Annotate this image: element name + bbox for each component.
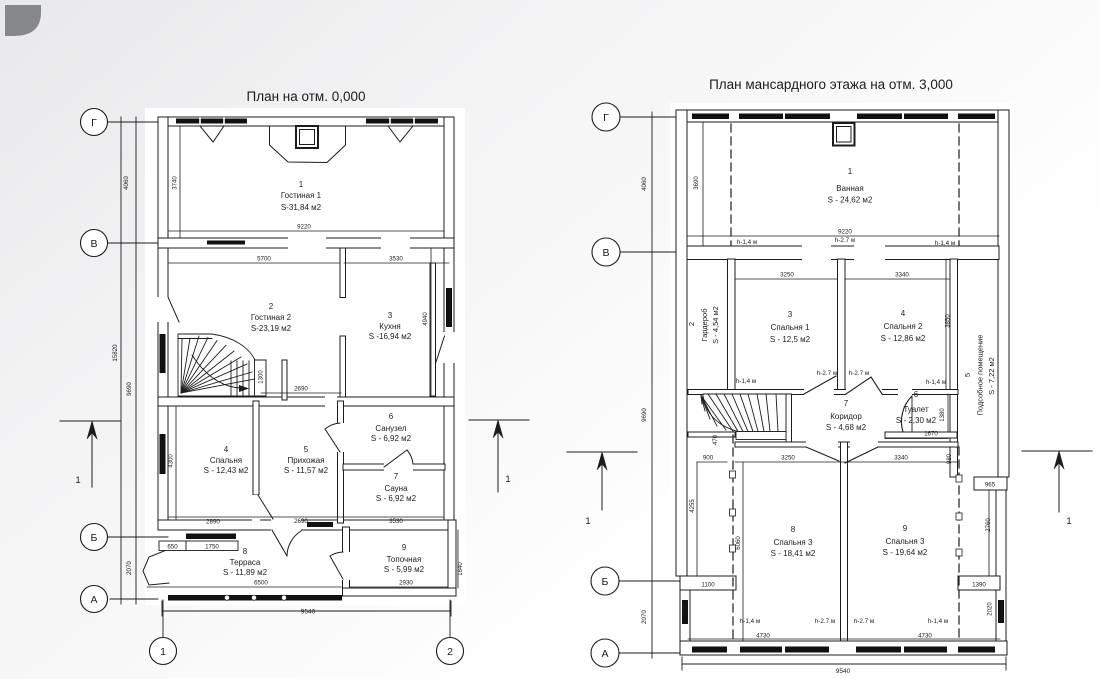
svg-text:2070: 2070	[126, 561, 133, 575]
svg-text:1390: 1390	[972, 582, 986, 589]
svg-text:1: 1	[1066, 516, 1071, 527]
svg-text:2760: 2760	[986, 518, 992, 532]
svg-text:5: 5	[963, 373, 972, 377]
svg-text:План на отм. 0,000: План на отм. 0,000	[247, 89, 366, 104]
svg-text:8: 8	[243, 547, 248, 556]
svg-text:6060: 6060	[736, 536, 742, 550]
svg-text:А: А	[90, 594, 97, 606]
svg-text:9540: 9540	[836, 668, 851, 675]
svg-text:7: 7	[394, 472, 399, 481]
svg-text:1750: 1750	[205, 544, 219, 551]
svg-text:2: 2	[447, 646, 453, 658]
svg-text:5700: 5700	[257, 256, 271, 263]
svg-text:965: 965	[985, 482, 996, 489]
svg-text:S-23,19 м2: S-23,19 м2	[251, 324, 292, 333]
svg-text:S - 12,86 м2: S - 12,86 м2	[881, 334, 926, 343]
svg-text:4: 4	[901, 309, 906, 318]
svg-text:1: 1	[848, 167, 853, 176]
svg-text:S - 19,64 м2: S - 19,64 м2	[883, 548, 928, 557]
svg-text:S - 24,62 м2: S - 24,62 м2	[828, 196, 873, 205]
svg-text:S - 6,92 м2: S - 6,92 м2	[376, 494, 417, 503]
svg-text:S - 2,30 м2: S - 2,30 м2	[896, 416, 937, 425]
svg-text:1: 1	[160, 646, 166, 658]
svg-text:Терраса: Терраса	[230, 558, 261, 567]
svg-text:S - 18,41 м2: S - 18,41 м2	[771, 549, 816, 558]
svg-text:Топочная: Топочная	[387, 555, 422, 564]
svg-text:6500: 6500	[254, 580, 268, 587]
svg-text:1: 1	[75, 475, 80, 486]
svg-text:2: 2	[687, 322, 696, 326]
svg-text:План мансардного этажа на отм.: План мансардного этажа на отм. 3,000	[709, 77, 953, 92]
svg-text:470: 470	[713, 434, 719, 445]
svg-text:Гостиная 1: Гостиная 1	[281, 191, 322, 200]
svg-text:S - 6,92 м2: S - 6,92 м2	[371, 434, 412, 443]
svg-text:4730: 4730	[756, 633, 770, 640]
svg-text:7: 7	[844, 399, 849, 408]
svg-text:2: 2	[269, 302, 274, 311]
svg-text:Ванная: Ванная	[836, 184, 863, 193]
svg-text:3530: 3530	[389, 518, 403, 525]
svg-text:3340: 3340	[895, 272, 909, 279]
svg-text:S - 11,57 м2: S - 11,57 м2	[284, 466, 329, 475]
svg-text:Гардероб: Гардероб	[700, 309, 709, 342]
svg-text:h-2.7 м: h-2.7 м	[817, 370, 837, 377]
svg-text:h-2.7 м: h-2.7 м	[835, 237, 855, 244]
svg-text:4: 4	[224, 445, 229, 454]
svg-text:h-1,4 м: h-1,4 м	[740, 618, 760, 625]
svg-text:2070: 2070	[641, 610, 648, 624]
svg-text:15820: 15820	[112, 344, 119, 362]
svg-text:6: 6	[389, 412, 394, 421]
svg-text:S -16,94 м2: S -16,94 м2	[369, 332, 412, 341]
svg-text:3740: 3740	[173, 176, 179, 190]
svg-text:4940: 4940	[423, 312, 429, 326]
svg-text:9690: 9690	[126, 382, 133, 396]
svg-text:6: 6	[914, 390, 919, 399]
svg-text:h-1,4 м: h-1,4 м	[928, 618, 948, 625]
svg-text:4730: 4730	[918, 633, 932, 640]
svg-text:2690: 2690	[294, 386, 308, 393]
svg-text:S - 7,22 м2: S - 7,22 м2	[987, 357, 996, 395]
svg-text:4060: 4060	[641, 177, 648, 191]
svg-text:9: 9	[903, 524, 908, 533]
svg-text:1: 1	[505, 474, 510, 485]
svg-text:2890: 2890	[206, 519, 220, 526]
svg-text:h-1,4 м: h-1,4 м	[935, 240, 955, 247]
svg-text:S - 4,54 м2: S - 4,54 м2	[711, 306, 720, 344]
svg-text:9: 9	[402, 543, 407, 552]
svg-text:h-1,4 м: h-1,4 м	[926, 379, 946, 386]
svg-text:3530: 3530	[389, 256, 403, 263]
svg-text:Г: Г	[91, 117, 97, 129]
svg-text:5: 5	[304, 445, 309, 454]
svg-text:2690: 2690	[294, 518, 308, 525]
svg-text:980: 980	[947, 453, 953, 464]
svg-text:Прихожая: Прихожая	[287, 456, 324, 465]
svg-text:S - 4,68 м2: S - 4,68 м2	[826, 423, 867, 432]
svg-text:3850: 3850	[946, 314, 952, 328]
svg-text:S - 5,99 м2: S - 5,99 м2	[384, 565, 425, 574]
svg-text:3: 3	[788, 310, 793, 319]
svg-text:4300: 4300	[169, 454, 175, 468]
svg-text:Спальня 2: Спальня 2	[884, 322, 923, 331]
svg-text:3250: 3250	[780, 272, 794, 279]
svg-text:1670: 1670	[924, 431, 938, 438]
svg-text:Кухня: Кухня	[379, 322, 400, 331]
svg-text:9220: 9220	[838, 229, 852, 236]
svg-text:h-1,4 м: h-1,4 м	[736, 378, 756, 385]
svg-text:3340: 3340	[894, 455, 908, 462]
svg-text:1100: 1100	[701, 582, 715, 589]
svg-text:Сауна: Сауна	[384, 484, 408, 493]
svg-text:650: 650	[167, 544, 178, 551]
svg-text:9220: 9220	[297, 224, 311, 231]
svg-text:Спальня 3: Спальня 3	[774, 538, 813, 547]
svg-text:Спальня 1: Спальня 1	[771, 323, 810, 332]
svg-text:9540: 9540	[301, 609, 316, 616]
svg-text:9690: 9690	[641, 408, 648, 422]
svg-text:Спальня 3: Спальня 3	[886, 537, 925, 546]
svg-text:2930: 2930	[399, 580, 413, 587]
svg-text:900: 900	[703, 455, 714, 462]
svg-text:1: 1	[299, 180, 304, 189]
svg-text:1300: 1300	[259, 370, 265, 384]
svg-text:S - 12,43 м2: S - 12,43 м2	[204, 466, 249, 475]
svg-text:Гостиная 2: Гостиная 2	[251, 313, 292, 322]
svg-text:1840: 1840	[458, 562, 464, 576]
svg-text:Туалет: Туалет	[903, 405, 929, 414]
svg-text:1865: 1865	[683, 603, 689, 617]
svg-text:В: В	[90, 238, 97, 250]
svg-text:8: 8	[791, 525, 796, 534]
svg-text:2020: 2020	[988, 602, 994, 616]
svg-text:4060: 4060	[123, 176, 130, 190]
svg-text:S - 12,5 м2: S - 12,5 м2	[770, 335, 811, 344]
svg-text:3690: 3690	[694, 176, 700, 190]
svg-text:Г: Г	[603, 112, 609, 124]
svg-text:4255: 4255	[690, 499, 696, 513]
svg-text:1: 1	[585, 516, 590, 527]
svg-text:S - 11,89 м2: S - 11,89 м2	[223, 568, 268, 577]
svg-text:Коридор: Коридор	[830, 412, 862, 421]
svg-text:В: В	[602, 247, 609, 259]
svg-text:h-2.7 м: h-2.7 м	[854, 618, 874, 625]
svg-text:S-31,84 м2: S-31,84 м2	[281, 203, 322, 212]
svg-text:Подсобное помещение: Подсобное помещение	[976, 335, 985, 416]
svg-text:1380: 1380	[940, 408, 946, 422]
svg-text:3250: 3250	[781, 455, 795, 462]
svg-text:Санузел: Санузел	[375, 424, 406, 433]
svg-text:Б: Б	[91, 532, 98, 544]
svg-text:h-1,4 м: h-1,4 м	[737, 239, 757, 246]
svg-text:Б: Б	[602, 576, 609, 588]
svg-text:h-2.7 м: h-2.7 м	[849, 370, 869, 377]
svg-text:3: 3	[388, 311, 393, 320]
svg-text:Спальня: Спальня	[210, 456, 242, 465]
svg-text:h-2.7 м: h-2.7 м	[815, 618, 835, 625]
svg-text:А: А	[601, 648, 608, 660]
